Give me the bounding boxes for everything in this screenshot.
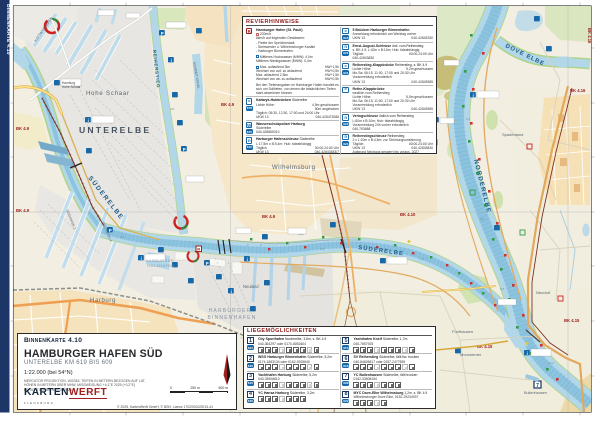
svg-text:R: R xyxy=(197,247,200,252)
svg-text:Bullenhausen: Bullenhausen xyxy=(524,391,547,395)
svg-text:4,0: 4,0 xyxy=(170,107,175,111)
svg-text:HOLZHAFEN: HOLZHAFEN xyxy=(147,264,174,268)
svg-text:BINNENHAFEN: BINNENHAFEN xyxy=(207,315,256,321)
svg-text:8,8: 8,8 xyxy=(500,287,505,291)
svg-text:i: i xyxy=(88,118,89,123)
svg-text:i: i xyxy=(247,257,248,262)
svg-text:Neudorf: Neudorf xyxy=(536,290,551,295)
svg-text:P: P xyxy=(183,147,186,152)
svg-text:BK 4.9: BK 4.9 xyxy=(16,126,30,131)
svg-text:Moorwerder: Moorwerder xyxy=(460,352,482,357)
svg-text:Fünfhausen: Fünfhausen xyxy=(452,329,473,334)
svg-text:Spadenland: Spadenland xyxy=(502,132,523,137)
svg-text:8,4: 8,4 xyxy=(466,117,471,121)
svg-text:9,2: 9,2 xyxy=(480,217,485,221)
svg-text:i: i xyxy=(231,289,232,294)
svg-text:BINNENKARTE 4.10: BINNENKARTE 4.10 xyxy=(5,4,11,55)
svg-text:7,1: 7,1 xyxy=(420,257,425,261)
svg-text:i: i xyxy=(527,351,528,356)
svg-text:BK 4.9: BK 4.9 xyxy=(262,214,276,219)
svg-text:P: P xyxy=(161,31,164,36)
svg-text:BK 4.9: BK 4.9 xyxy=(16,208,30,213)
svg-text:i: i xyxy=(473,93,474,98)
svg-text:P: P xyxy=(206,261,209,266)
svg-text:Hohe Schaar: Hohe Schaar xyxy=(86,91,130,97)
svg-text:10,2: 10,2 xyxy=(548,361,554,365)
svg-text:BK 4.9: BK 4.9 xyxy=(221,102,235,107)
svg-text:i: i xyxy=(171,58,172,63)
svg-text:Neuland: Neuland xyxy=(243,284,259,289)
svg-text:UNTERELBE: UNTERELBE xyxy=(79,125,151,135)
svg-text:Wilhelmsburg: Wilhelmsburg xyxy=(272,165,316,171)
svg-text:Harburg: Harburg xyxy=(90,298,116,304)
svg-text:BK 4.16: BK 4.16 xyxy=(570,88,586,93)
svg-text:7: 7 xyxy=(536,383,539,389)
svg-text:HARBURGER: HARBURGER xyxy=(146,259,174,263)
svg-text:BK 4.15: BK 4.15 xyxy=(564,318,580,323)
svg-text:i: i xyxy=(141,256,142,261)
svg-text:5,9: 5,9 xyxy=(320,247,325,251)
svg-text:HARBURGER: HARBURGER xyxy=(209,308,252,314)
svg-text:BK 4.10: BK 4.10 xyxy=(400,212,416,217)
svg-text:Hohe Schaar: Hohe Schaar xyxy=(62,85,82,89)
svg-text:5,4: 5,4 xyxy=(120,235,125,239)
